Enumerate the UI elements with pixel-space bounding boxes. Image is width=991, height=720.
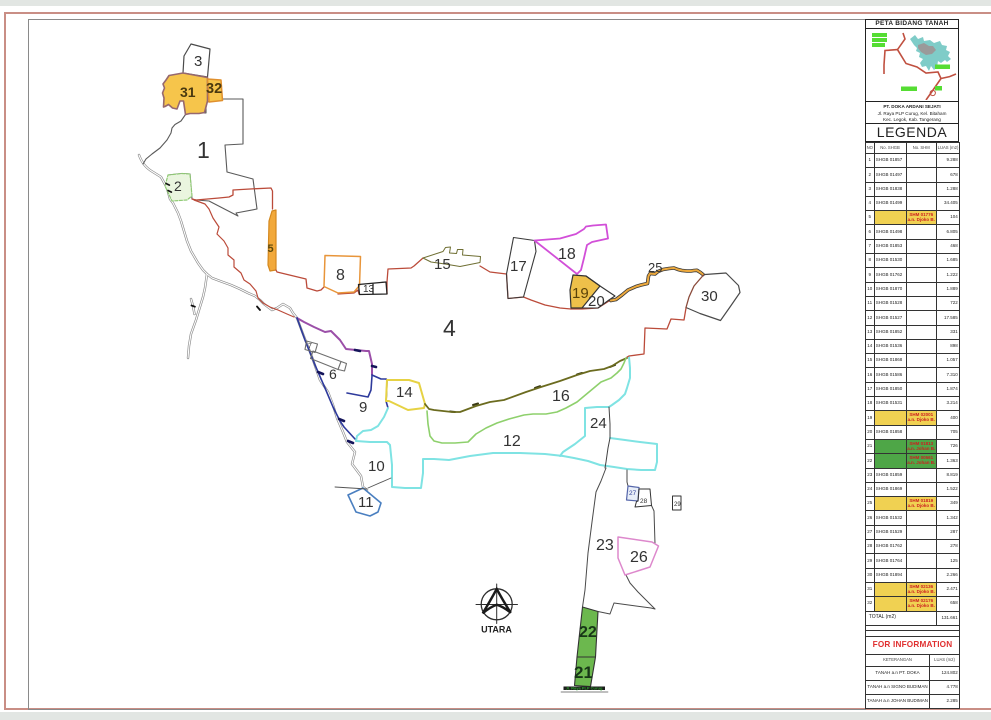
svg-text:30: 30	[701, 288, 718, 305]
svg-text:24: 24	[590, 415, 607, 432]
svg-text:27: 27	[629, 490, 637, 497]
svg-text:31: 31	[180, 84, 196, 100]
svg-text:4: 4	[443, 315, 456, 341]
svg-text:9: 9	[359, 399, 367, 416]
svg-text:1: 1	[197, 137, 210, 163]
svg-text:UTARA: UTARA	[481, 625, 512, 635]
svg-text:14: 14	[396, 384, 413, 401]
svg-text:10: 10	[368, 458, 385, 475]
svg-text:20: 20	[588, 293, 605, 310]
svg-text:16: 16	[552, 388, 570, 405]
svg-text:17: 17	[510, 258, 527, 275]
svg-text:21: 21	[574, 663, 593, 682]
svg-text:7: 7	[308, 343, 312, 350]
svg-text:26: 26	[630, 549, 648, 566]
svg-text:15: 15	[434, 256, 451, 273]
svg-text:Jl. Raya PLP Curug: Jl. Raya PLP Curug	[566, 686, 603, 691]
svg-text:2: 2	[174, 178, 182, 194]
svg-text:8: 8	[336, 267, 345, 284]
svg-text:29: 29	[674, 502, 681, 508]
svg-text:23: 23	[596, 537, 614, 554]
svg-text:18: 18	[558, 246, 576, 263]
svg-text:12: 12	[503, 433, 521, 450]
svg-text:6: 6	[329, 366, 337, 382]
svg-text:32: 32	[206, 81, 222, 97]
svg-text:25: 25	[648, 260, 662, 275]
svg-text:3: 3	[194, 53, 202, 70]
svg-text:28: 28	[640, 498, 648, 505]
svg-text:5: 5	[268, 243, 274, 255]
svg-text:22: 22	[579, 624, 597, 641]
svg-text:11: 11	[358, 494, 374, 511]
svg-text:13: 13	[363, 284, 375, 295]
svg-text:19: 19	[572, 285, 589, 302]
